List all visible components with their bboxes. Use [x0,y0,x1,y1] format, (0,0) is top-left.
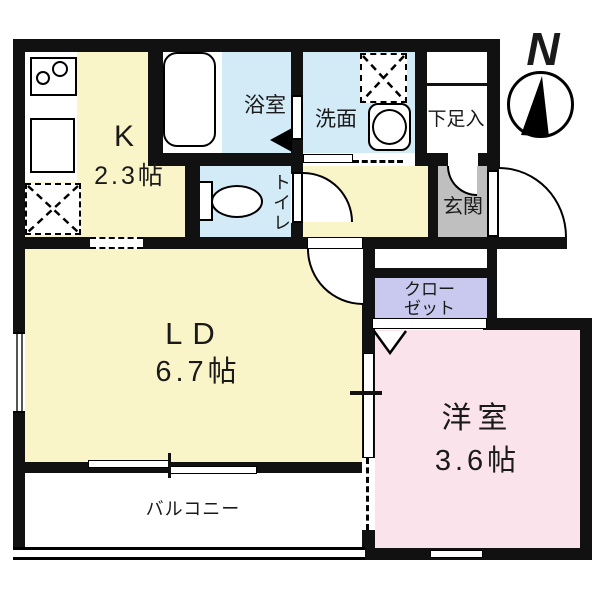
stove-burner-small [36,71,50,85]
living-dining-label: LD [140,317,250,351]
wall-bath-washroom-b [291,138,303,166]
wall-western-right [580,318,592,560]
shoe-door-opening [448,153,478,166]
ld-left-window [13,332,25,413]
living-dining-area-label: 6.7帖 [118,357,278,389]
wash-basin-bowl [372,109,407,145]
kitchen-area-label: 2.3帖 [70,163,190,191]
wall-left [13,39,25,558]
western-room [375,330,580,548]
balcony-window-panel-left [88,460,170,468]
washroom-label: 洗面 [304,108,368,131]
washer-space [360,53,407,103]
partition-sliding-panel [363,353,374,458]
wall-washroom-shoe [415,39,427,166]
balcony-window-panel-right [170,466,257,474]
washroom-sliding-door [303,154,353,163]
western-room-area-label: 3.6帖 [385,446,570,478]
floor-plan: N K 2.3帖 浴室 洗面 トイレ 下足入 玄関 クロー ゼット LD 6.7… [0,0,600,600]
ld-left-window-line1 [16,334,18,411]
western-room-label: 洋室 [400,402,555,435]
shoe-cabinet-divider [425,83,487,86]
compass [507,71,574,138]
compass-north-label: N [518,24,568,75]
toilet-label: トイレ [266,170,290,236]
toilet-door [292,172,303,223]
kitchen-sink [30,118,75,173]
partition-open-track [366,458,369,530]
entrance-door-swing [499,167,567,237]
ld-door [307,237,363,249]
balcony-label: バルコニー [128,500,258,520]
balcony-window-tick [168,453,171,478]
shoe-cabinet-label: 下足入 [420,110,492,131]
western-window [430,550,483,558]
refrigerator-space [25,183,81,235]
wall-western-top [483,318,592,330]
ld-left-window-line2 [21,334,23,411]
stove-burner-large [52,61,68,77]
closet-door [372,318,487,329]
partition-tick [350,391,382,395]
kitchen-opening [90,237,143,249]
kitchen-label: K [95,120,155,153]
entrance-label: 玄関 [436,196,490,218]
washroom-open-track [353,160,403,163]
bath-label: 浴室 [233,94,297,117]
wall-bath-washroom-a [291,39,303,97]
balcony-rail [13,547,365,560]
closet-label: クロー ゼット [372,280,487,318]
toilet-bowl [211,185,263,218]
wall-closet-top [362,268,497,278]
bathtub [163,52,216,147]
